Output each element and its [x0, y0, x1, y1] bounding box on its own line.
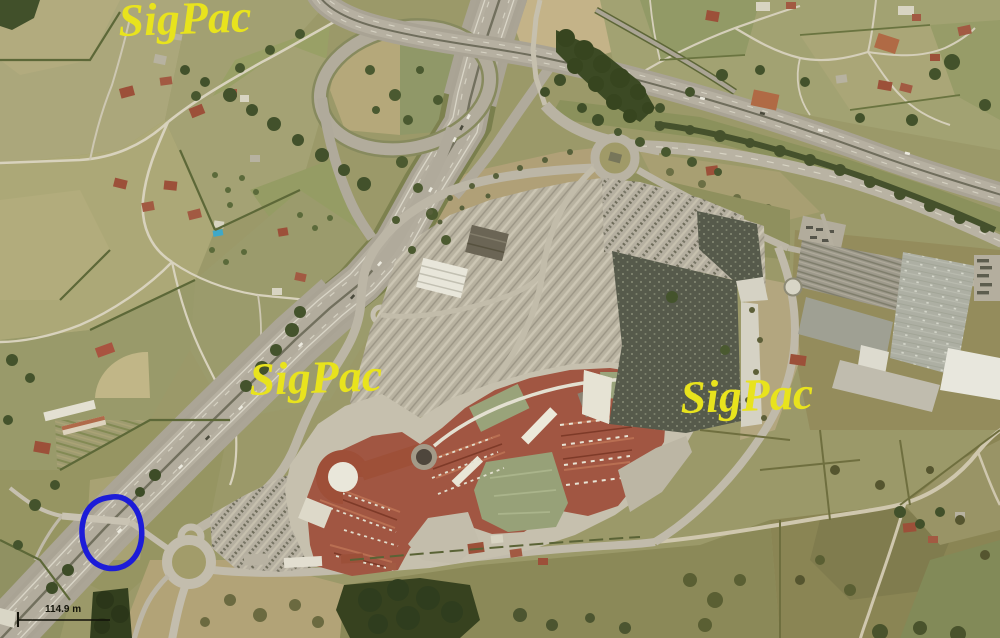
svg-text:SigPac: SigPac	[679, 367, 814, 423]
svg-text:SigPac: SigPac	[248, 349, 383, 405]
svg-text:114.9 m: 114.9 m	[45, 604, 81, 615]
svg-text:SigPac: SigPac	[117, 0, 252, 46]
